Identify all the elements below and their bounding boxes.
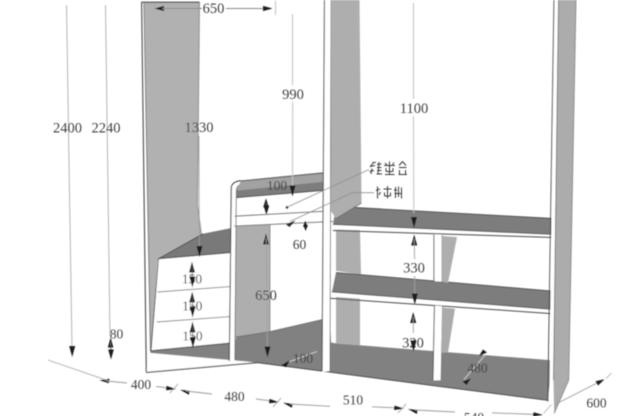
svg-text:2400: 2400 — [53, 121, 82, 137]
svg-text:990: 990 — [282, 87, 304, 103]
svg-text:650: 650 — [203, 1, 225, 17]
svg-text:100: 100 — [267, 178, 288, 193]
svg-text:650: 650 — [255, 288, 277, 304]
svg-text:80: 80 — [110, 327, 124, 342]
svg-text:480: 480 — [467, 361, 488, 376]
svg-text:480: 480 — [224, 389, 245, 404]
svg-text:1330: 1330 — [185, 120, 214, 136]
svg-text:400: 400 — [131, 377, 152, 392]
svg-text:2240: 2240 — [92, 121, 121, 137]
svg-text:330: 330 — [403, 261, 425, 277]
svg-text:100: 100 — [293, 351, 314, 366]
svg-text:1100: 1100 — [400, 101, 428, 117]
svg-text:600: 600 — [586, 396, 607, 411]
svg-text:540: 540 — [464, 410, 485, 416]
svg-text:60: 60 — [293, 237, 307, 252]
svg-text:510: 510 — [343, 393, 364, 408]
